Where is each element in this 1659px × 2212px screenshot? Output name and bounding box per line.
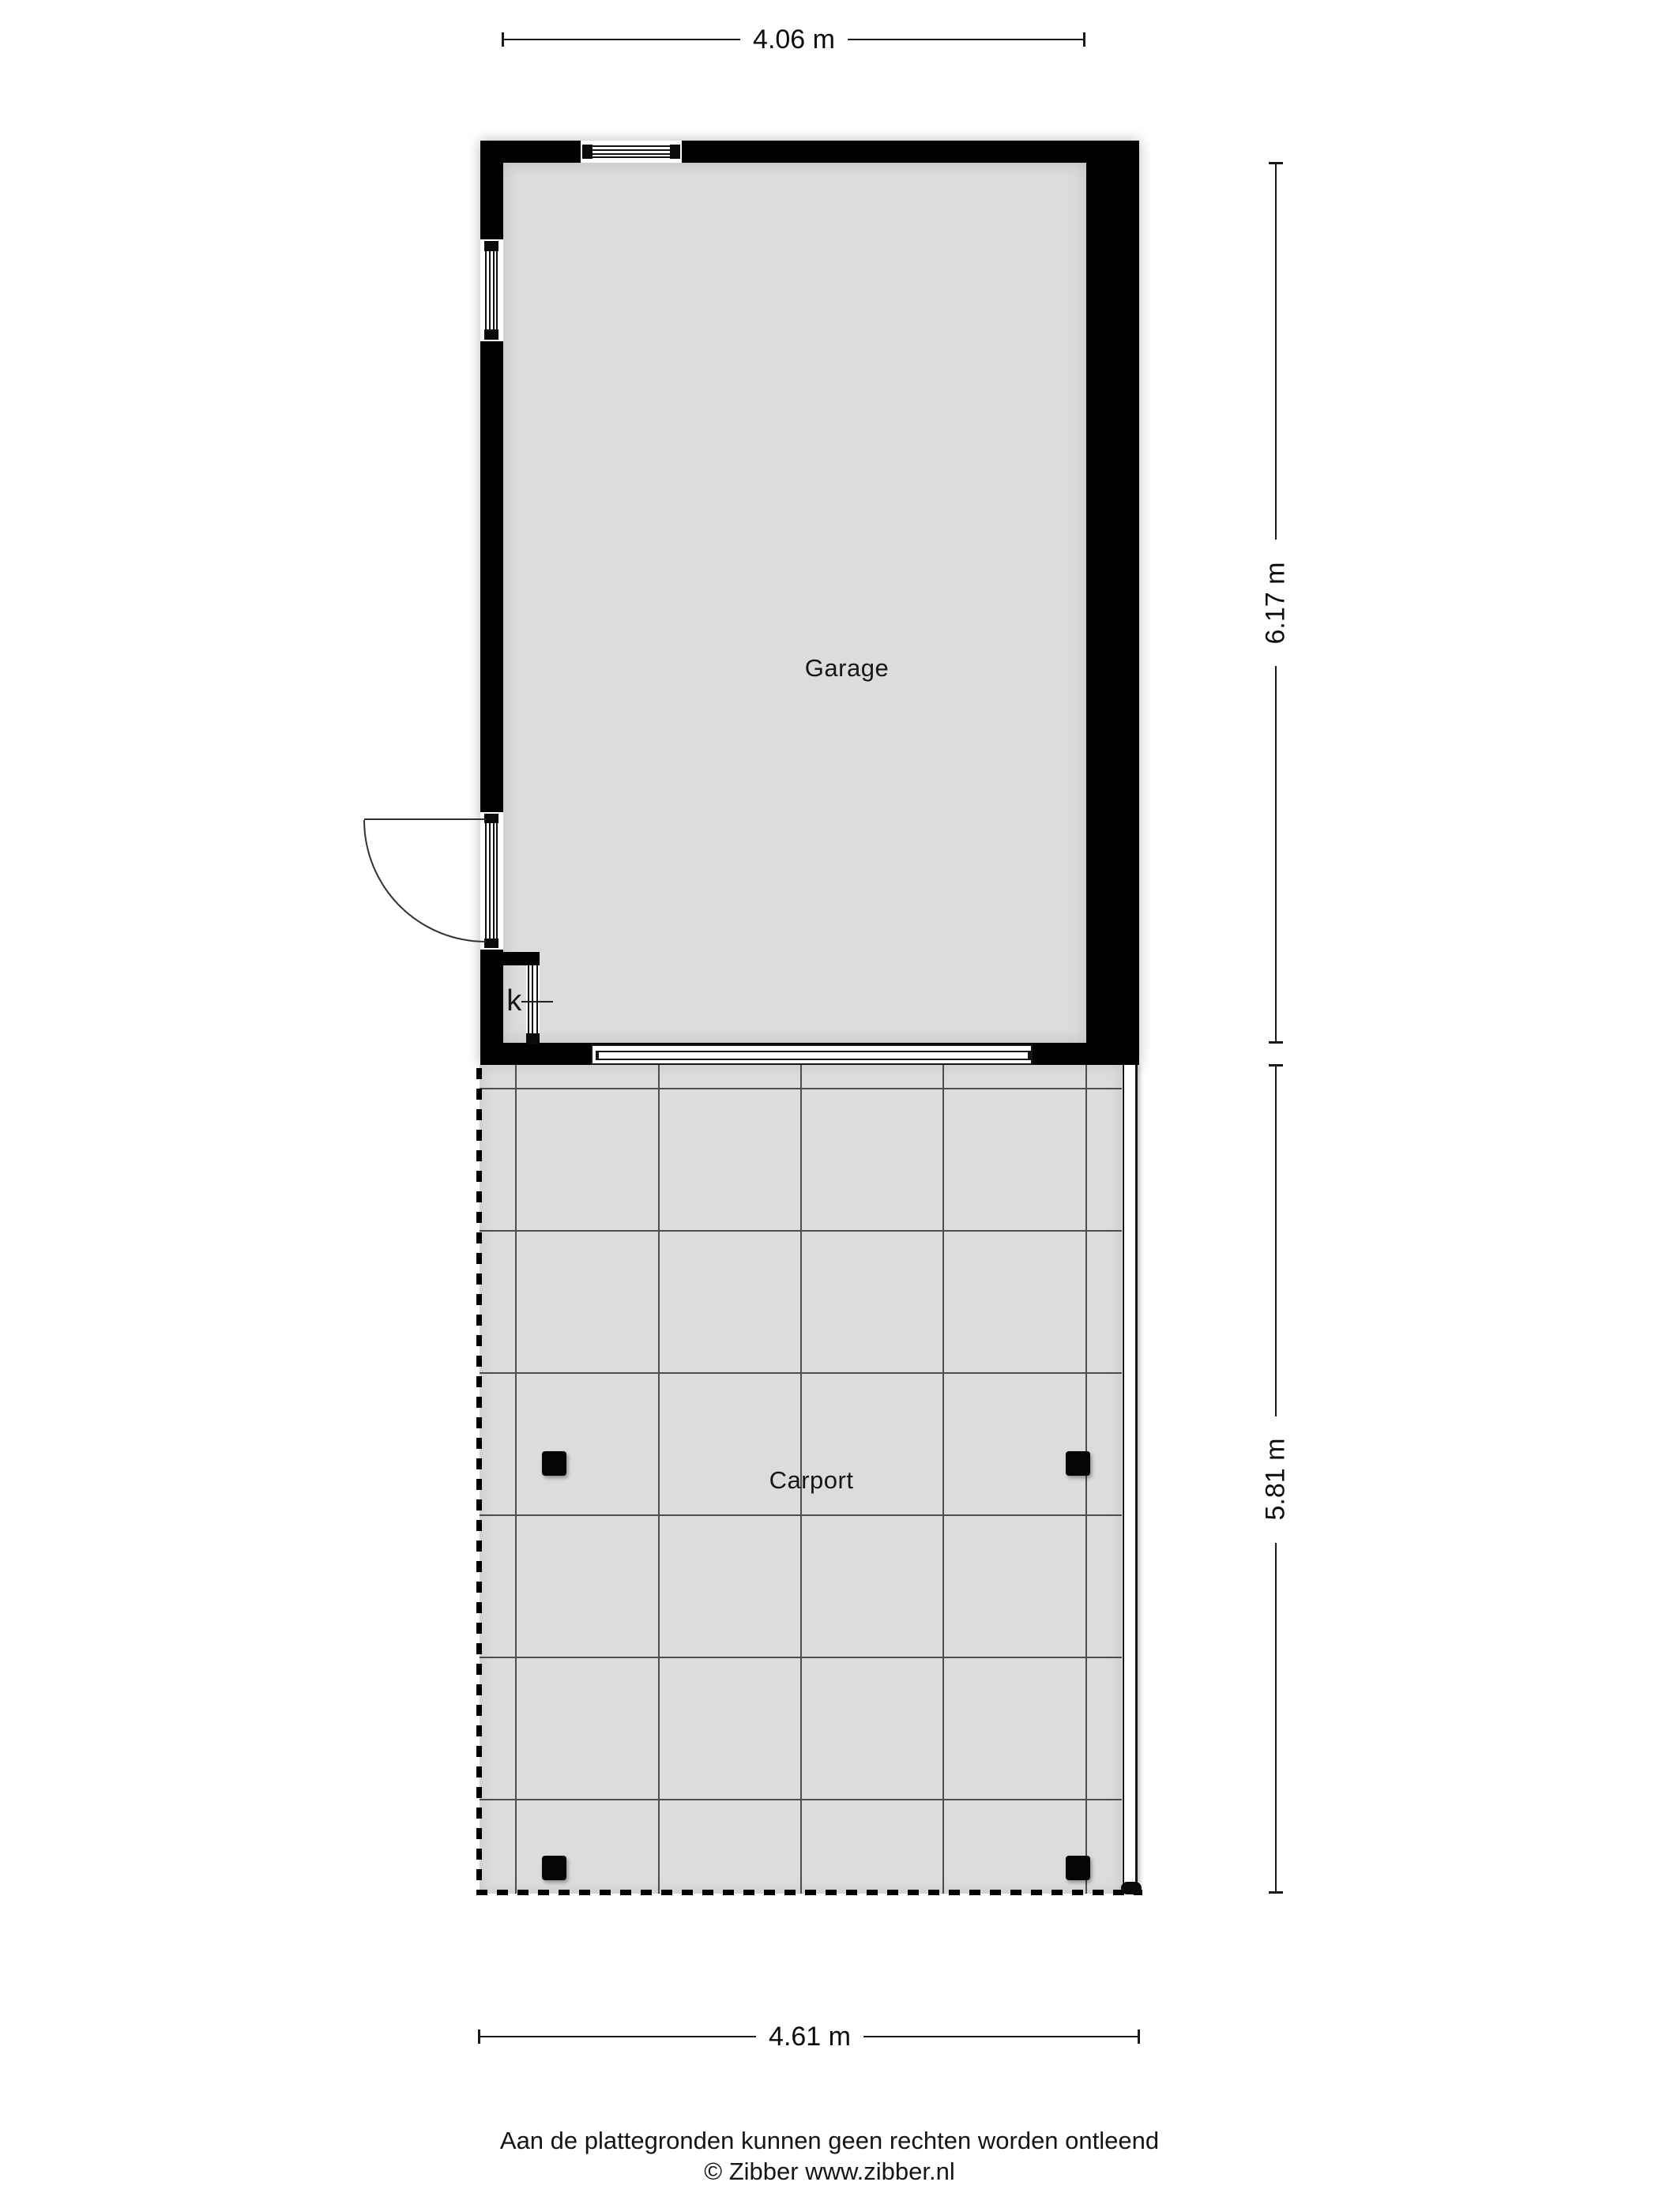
closet-leader-line: [521, 1001, 553, 1003]
door-panes: [485, 823, 498, 939]
dimension-tick: [1269, 1041, 1283, 1044]
dimension-line: [503, 39, 740, 40]
dimension-tick: [1269, 1064, 1283, 1066]
carport-grid-line: [480, 1514, 1122, 1516]
carport-grid-line: [480, 1372, 1122, 1374]
dimension-tick: [1269, 162, 1283, 164]
window-end-cap: [582, 145, 592, 159]
footer-disclaimer: Aan de plattegronden kunnen geen rechten…: [0, 2127, 1659, 2155]
dimension-line: [1275, 1065, 1277, 1416]
dimension-carport-width: 4.61 m: [480, 2020, 1140, 2053]
window-end-cap: [484, 241, 498, 251]
dimension-tick: [478, 2030, 480, 2044]
carport-post: [542, 1856, 566, 1880]
dimension-line: [848, 39, 1085, 40]
dimension-garage-width: 4.06 m: [503, 23, 1085, 56]
carport-grid-line: [480, 1230, 1122, 1232]
dimension-tick: [1269, 1891, 1283, 1894]
carport-grid-line: [1085, 1065, 1087, 1894]
carport-dashed-left-boundary: [476, 1068, 482, 1894]
dimension-garage-height: 6.17 m: [1259, 163, 1292, 1043]
carport-post: [542, 1451, 566, 1476]
dimension-tick: [1083, 32, 1085, 47]
carport-grid-line: [658, 1065, 660, 1894]
door-swing-arc: [363, 820, 486, 942]
dimension-line: [480, 2036, 756, 2037]
carport-grid-line: [480, 1657, 1122, 1658]
carport-right-edge: [1123, 1065, 1138, 1890]
carport-post: [1066, 1856, 1090, 1880]
window-end-cap: [670, 145, 680, 159]
carport-grid-line: [942, 1065, 944, 1894]
garage-sectional-door: [591, 1044, 1033, 1065]
dimension-label: 5.81 m: [1261, 1439, 1292, 1521]
garage-floor: [503, 163, 1086, 1043]
dimension-line: [1275, 163, 1277, 540]
carport-dashed-bottom-boundary: [476, 1890, 1142, 1895]
dimension-label: 6.17 m: [1261, 562, 1292, 644]
carport-grid-line: [515, 1065, 517, 1894]
window-panes: [592, 145, 670, 158]
closet-door-cap: [526, 1033, 540, 1044]
garage-label: Garage: [752, 654, 942, 683]
carport-label: Carport: [717, 1466, 906, 1495]
garage-left-window: [480, 239, 503, 341]
dimension-line: [863, 2036, 1140, 2037]
floorplan-page: k Garage Carport 4.06 m 6.17 m: [0, 0, 1659, 2212]
door-end-cap: [484, 814, 498, 823]
dimension-tick: [1138, 2030, 1140, 2044]
dimension-label: 4.61 m: [756, 2022, 863, 2052]
garage-door-rail: [596, 1051, 1031, 1060]
door-end-cap: [484, 939, 498, 948]
dimension-carport-height: 5.81 m: [1259, 1065, 1292, 1894]
carport-right-edge-cap: [1121, 1882, 1142, 1894]
window-panes: [485, 251, 498, 329]
dimension-line: [1275, 666, 1277, 1043]
carport-post: [1066, 1451, 1090, 1476]
dimension-label: 4.06 m: [740, 24, 848, 55]
dimension-line: [1275, 1543, 1277, 1894]
window-end-cap: [484, 329, 498, 340]
carport-grid-line: [480, 1799, 1122, 1800]
garage-top-window: [581, 141, 682, 163]
closet-top-wall: [480, 952, 540, 965]
dimension-tick: [502, 32, 504, 47]
footer-copyright: © Zibber www.zibber.nl: [0, 2157, 1659, 2186]
carport-grid-line: [480, 1088, 1122, 1089]
